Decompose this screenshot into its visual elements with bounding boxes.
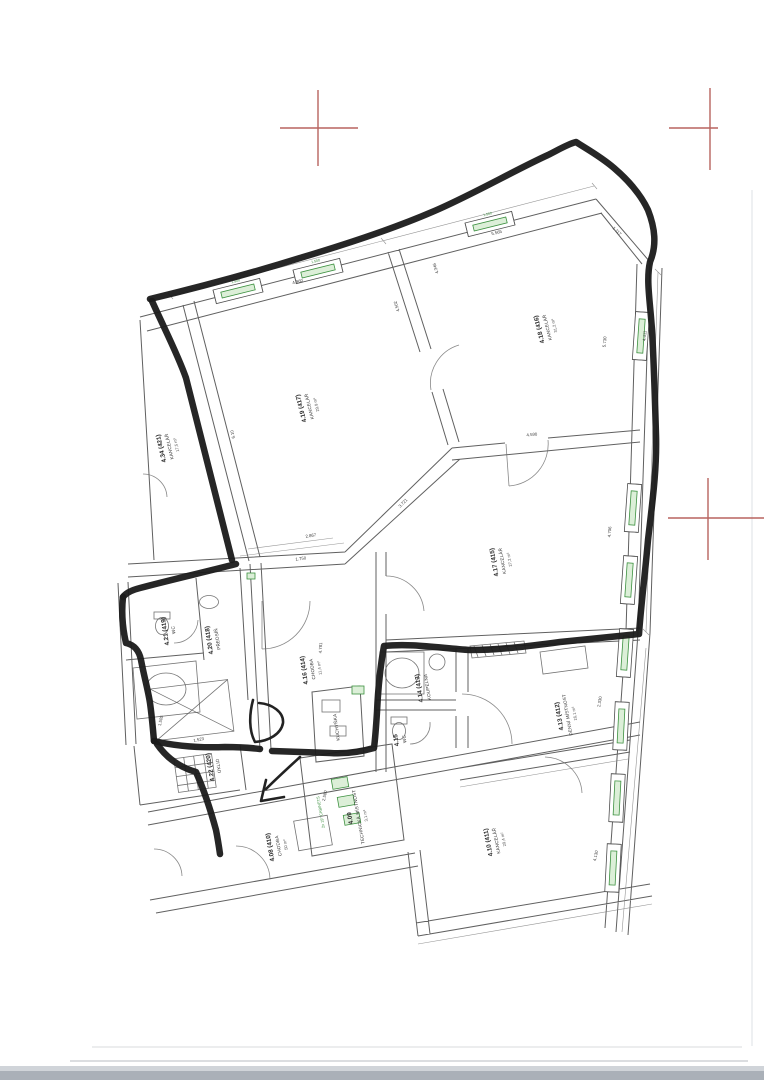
dimension-label: 4.346 [431,262,439,274]
dimension-label: 1.523 [193,736,205,743]
svg-text:4.09: 4.09 [346,811,355,825]
dimension-label: 1.505 [157,714,164,726]
room-label: 4.19 (417)KANCELÁŘ29,9 m² [295,390,322,423]
svg-text:29,9 m²: 29,9 m² [312,397,320,413]
svg-text:CHODBA: CHODBA [274,834,283,856]
window-symbol [609,774,625,823]
room-label: 4.20 (418)PŘEDSÍŇ [204,624,222,655]
room-label: 4.14 (413)KOUPELNA [414,672,432,703]
dimension-label: 6.10 [229,429,236,439]
svg-text:11,4 m²: 11,4 m² [316,660,323,675]
room-label: 4.15WC [392,732,408,747]
window-symbol: 1.500 [464,207,515,237]
svg-text:16,1 m²: 16,1 m² [570,706,577,721]
svg-text:4.15: 4.15 [392,733,401,747]
dimension-label: 4.130 [592,849,599,861]
dimension-label: 4.960 [292,278,304,286]
dimension-label: 4.706 [607,526,613,538]
svg-text:27,2 m²: 27,2 m² [505,552,512,567]
walls [118,183,662,944]
dimension-label: 5.730 [601,336,607,348]
dimension-label: 1.750 [295,555,307,562]
window-symbol [624,484,641,533]
svg-text:3,1 m²: 3,1 m² [362,809,369,822]
window-symbol [620,556,637,605]
window-symbol [605,844,621,893]
svg-text:17,5 m²: 17,5 m² [172,437,180,453]
window-symbols: 1.5001.5001.500 [212,207,650,893]
room-label: KUCHYŇKA [331,713,341,741]
room-label: 4.18 (416)KANCELÁŘ31,2 m² [533,311,560,344]
dimension-label: 4.781 [318,642,323,654]
svg-text:CHODBA: CHODBA [308,658,316,680]
window-symbol [613,702,629,751]
svg-text:WC: WC [401,734,407,743]
room-label: 4.34 (421)KANCELÁŘ17,5 m² [155,430,182,463]
svg-text:29,4 m²: 29,4 m² [499,831,507,846]
dimension-label: 2.330 [596,695,603,707]
room-label: 4.08 (410)CHODBA50 m² [265,830,291,862]
dimension-label: 2.867 [305,532,317,539]
room-label: 4.21 (419)WC [160,615,178,646]
svg-text:KUCHYŇKA: KUCHYŇKA [331,713,341,741]
shaft-cross [150,680,234,741]
svg-text:50 m²: 50 m² [282,838,289,850]
dimension-label: 4.590 [526,431,538,437]
registration-cross-marks [280,88,764,560]
svg-text:31,2 m²: 31,2 m² [550,318,558,334]
dimension-label: 2.580 [321,789,328,801]
scanned-floorplan-page: 1.5001.5001.500 4.34 (421)KANCELÁŘ17,5 m… [0,0,764,1080]
bathtub [385,658,419,688]
washbasin [200,596,219,609]
floorplan-svg: 1.5001.5001.500 4.34 (421)KANCELÁŘ17,5 m… [0,0,764,1080]
dimension-label: 4.502 [392,300,400,312]
dimension-label: 1.117 [612,225,623,236]
room-label: 4.13 (412)DENNÍ MÍSTNOST16,1 m² [552,692,580,737]
sink [429,654,445,670]
room-label: 4.22 (420)ÚKLID [205,751,224,782]
room-label: 4.16 (414)CHODBA11,4 m² [299,654,324,685]
svg-text:ÚKLID: ÚKLID [214,758,223,774]
svg-text:4.21 (419): 4.21 (419) [160,617,171,646]
room-label: 4.17 (415)KANCELÁŘ27,2 m² [489,545,515,577]
svg-text:WC: WC [170,625,176,634]
room-label: 4.10 (411)KANCELÁŘ29,4 m² [482,825,508,857]
room-labels: 4.34 (421)KANCELÁŘ17,5 m²4.19 (417)KANCE… [155,311,581,862]
